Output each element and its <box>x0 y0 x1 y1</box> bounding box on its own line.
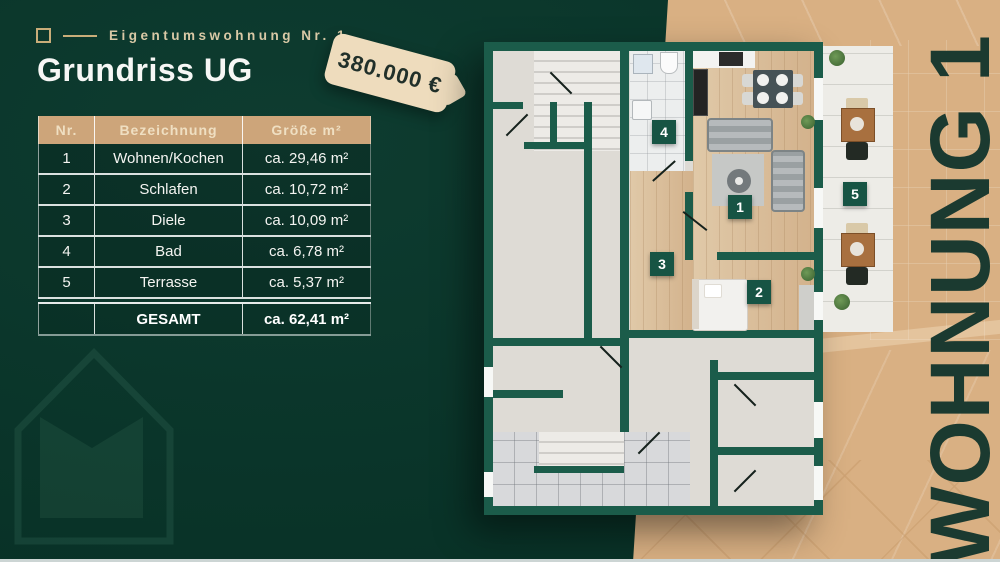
eyebrow: Eigentumswohnung Nr. 1 <box>36 28 348 43</box>
hall-floor <box>630 171 693 330</box>
plan-wall <box>710 360 718 506</box>
plan-wall <box>484 506 823 515</box>
cell-size: ca. 10,09 m² <box>242 206 371 235</box>
cell-nr: 5 <box>38 268 94 297</box>
price-tag-label: 380.000 € <box>335 47 445 100</box>
cell-empty <box>38 304 94 334</box>
plate <box>757 74 769 86</box>
cell-nr: 3 <box>38 206 94 235</box>
col-header-nr: Nr. <box>38 116 94 144</box>
window <box>814 466 823 500</box>
floorplan-image: 1 2 3 4 5 <box>484 42 894 515</box>
plan-wall <box>620 42 629 432</box>
window <box>484 367 493 397</box>
coffee-table-center <box>735 177 743 185</box>
table-row: 1 Wohnen/Kochen ca. 29,46 m² <box>38 144 371 175</box>
plant <box>834 294 850 310</box>
cell-size: ca. 6,78 m² <box>242 237 371 266</box>
dimension-line-icon <box>63 35 97 37</box>
price-tag: 380.000 € <box>322 32 457 115</box>
stairs-bottom <box>539 432 624 466</box>
table-row: 4 Bad ca. 6,78 m² <box>38 237 371 268</box>
table-total-row: GESAMT ca. 62,41 m² <box>38 302 371 336</box>
plan-wall <box>718 447 814 455</box>
cell-name: Diele <box>94 206 242 235</box>
cell-size: ca. 5,37 m² <box>242 268 371 297</box>
plan-wall <box>493 102 523 109</box>
total-label: GESAMT <box>94 304 242 334</box>
room-badge-living: 1 <box>728 195 752 219</box>
terrace-chair <box>846 142 868 160</box>
room-badge-bath: 4 <box>652 120 676 144</box>
plant <box>829 50 845 66</box>
plan-wall <box>550 102 557 149</box>
room-badge-bedroom: 2 <box>747 280 771 304</box>
washer <box>632 100 652 120</box>
plan-wall <box>484 42 493 515</box>
table-row: 5 Terrasse ca. 5,37 m² <box>38 268 371 299</box>
plan-wall <box>685 192 693 260</box>
col-header-size: Größe m² <box>242 116 371 144</box>
fridge-tower <box>693 69 708 116</box>
plate <box>757 92 769 104</box>
stairs-top <box>534 51 622 151</box>
col-header-name: Bezeichnung <box>94 116 242 144</box>
plan-wall <box>584 102 592 338</box>
sofa <box>771 150 805 212</box>
plan-wall <box>484 338 629 346</box>
closet <box>799 285 814 330</box>
terrace-chair <box>846 267 868 285</box>
cell-nr: 4 <box>38 237 94 266</box>
plant <box>801 115 815 129</box>
plate <box>776 92 788 104</box>
plan-wall <box>717 252 814 260</box>
window <box>814 292 823 320</box>
toilet <box>660 52 678 74</box>
sofa <box>707 118 773 152</box>
window <box>814 78 823 120</box>
bath-sink <box>633 54 653 74</box>
cell-name: Bad <box>94 237 242 266</box>
table-header-row: Nr. Bezeichnung Größe m² <box>38 116 371 144</box>
apartment-vertical-label: WOHNUNG 1 <box>914 40 1000 560</box>
plant <box>801 267 815 281</box>
room-badge-terrace: 5 <box>843 182 867 206</box>
cell-name: Wohnen/Kochen <box>94 144 242 173</box>
table-row: 3 Diele ca. 10,09 m² <box>38 206 371 237</box>
cell-nr: 2 <box>38 175 94 204</box>
plan-wall <box>524 142 590 149</box>
plan-wall <box>534 466 624 473</box>
plan-wall <box>620 330 823 338</box>
plan-wall <box>685 51 693 161</box>
cell-name: Schlafen <box>94 175 242 204</box>
plate <box>850 242 864 256</box>
window <box>814 402 823 438</box>
room-table: Nr. Bezeichnung Größe m² 1 Wohnen/Kochen… <box>38 116 371 336</box>
eyebrow-label: Eigentumswohnung Nr. 1 <box>109 28 348 43</box>
plan-wall <box>718 372 814 380</box>
plan-wall <box>484 42 823 51</box>
table-row: 2 Schlafen ca. 10,72 m² <box>38 175 371 206</box>
cell-name: Terrasse <box>94 268 242 297</box>
cell-nr: 1 <box>38 144 94 173</box>
plan-wall <box>493 390 563 398</box>
window <box>814 188 823 228</box>
dimension-square-icon <box>36 28 51 43</box>
page-title: Grundriss UG <box>37 52 253 89</box>
bed-headboard <box>692 279 699 329</box>
stove <box>719 52 743 66</box>
room-badge-hall: 3 <box>650 252 674 276</box>
plate <box>850 117 864 131</box>
window <box>484 472 493 497</box>
house-watermark-icon <box>12 345 180 550</box>
cell-size: ca. 10,72 m² <box>242 175 371 204</box>
total-size: ca. 62,41 m² <box>242 304 371 334</box>
cell-size: ca. 29,46 m² <box>242 144 371 173</box>
pillow <box>704 284 722 298</box>
plate <box>776 74 788 86</box>
flyer-page: WOHNUNG 1 Eigentumswohnung Nr. 1 Grundri… <box>0 0 1000 562</box>
